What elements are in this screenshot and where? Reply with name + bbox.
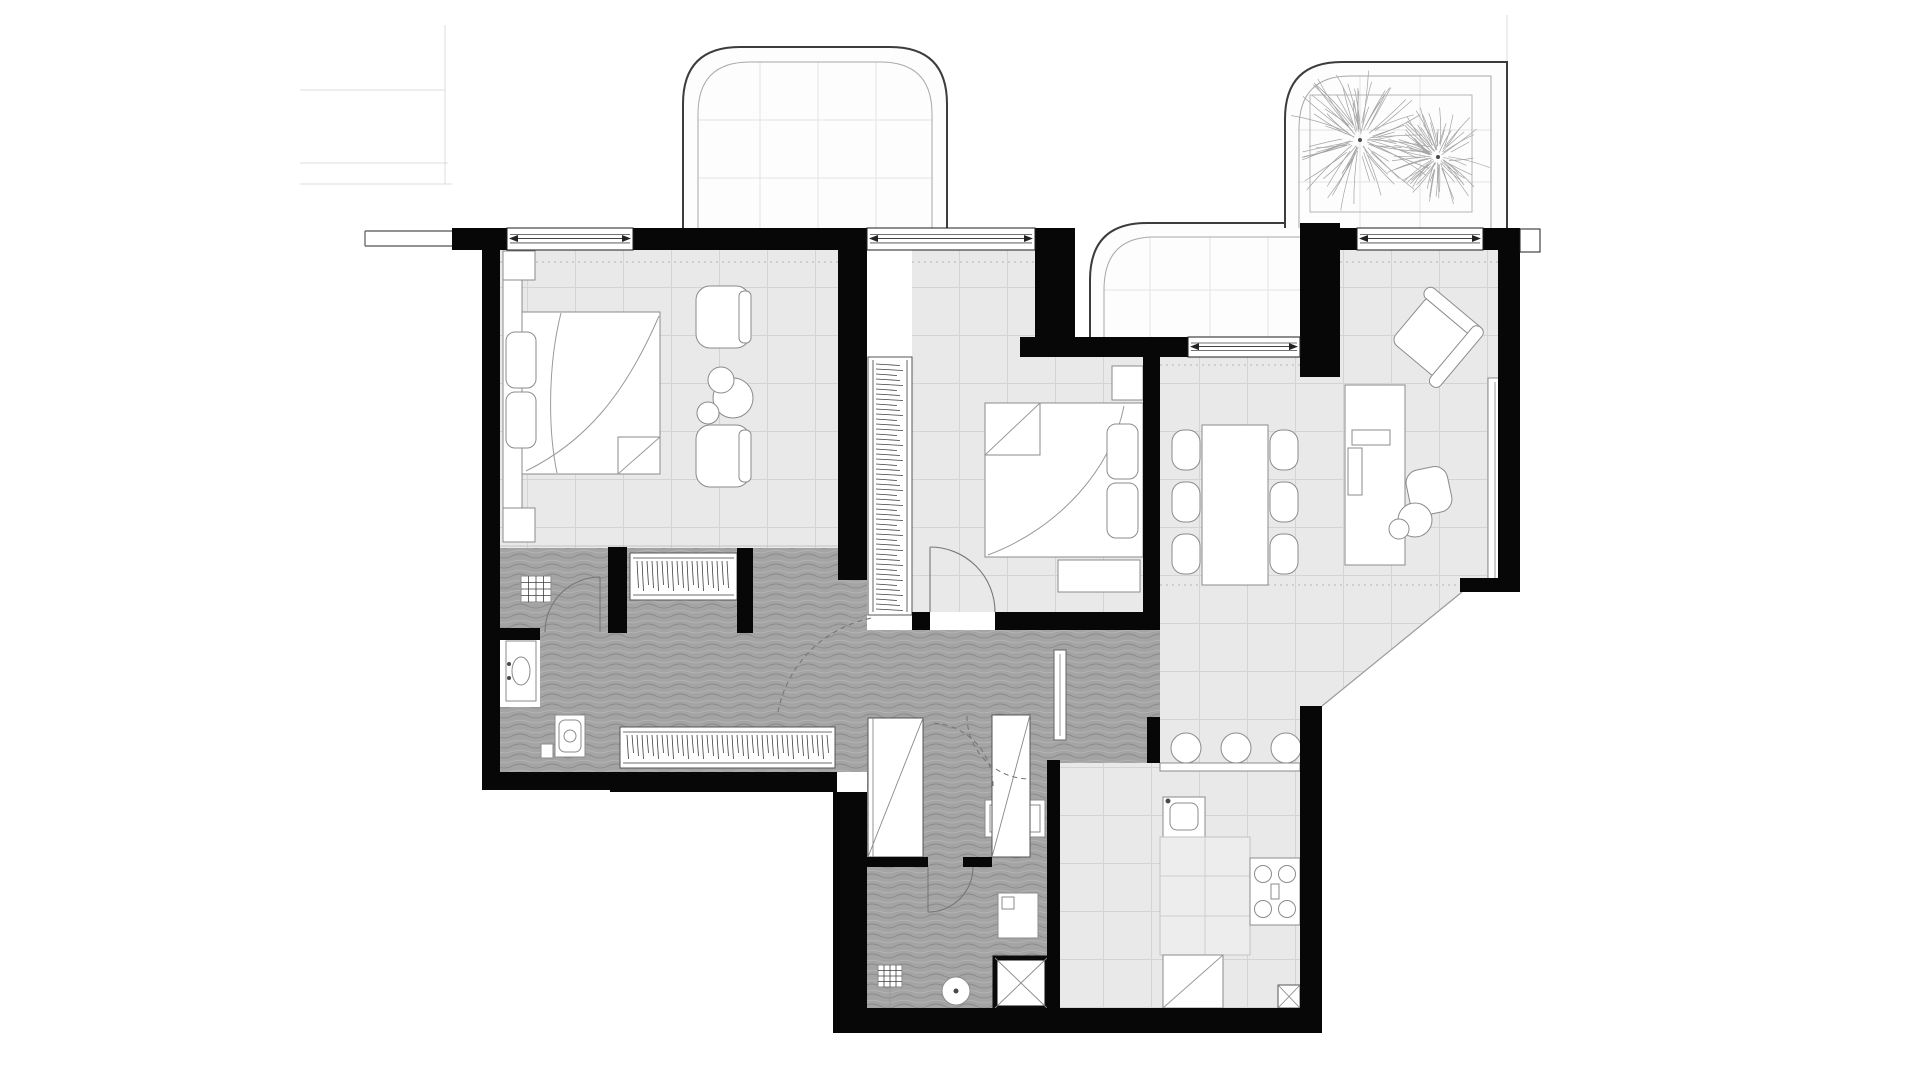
side-table-small <box>697 402 719 424</box>
corridor-under-wall <box>838 580 867 772</box>
window-bedroom2-balcony <box>867 228 1035 250</box>
desk-monitor <box>1352 430 1390 445</box>
bedroom2-bottom-wall <box>995 612 1160 630</box>
kitchen-right-wall <box>1300 706 1322 1008</box>
window-living-balcony <box>1188 337 1300 357</box>
window-bedroom1 <box>507 228 633 250</box>
dining-chair-3 <box>1172 534 1200 574</box>
armchair-1-back <box>739 291 751 343</box>
divider-wall <box>838 228 867 580</box>
bottom-wall-kitchen <box>1047 1008 1322 1033</box>
shaft-small <box>1278 985 1300 1008</box>
dining-chair-6 <box>1270 534 1298 574</box>
bar-stool-1 <box>1171 733 1201 763</box>
bath2-stub-left <box>867 857 928 867</box>
kitchen-left-wall <box>1047 760 1060 1008</box>
stub-b <box>737 548 753 633</box>
hall-bottom-wall <box>610 772 837 792</box>
top-wall-b <box>633 228 867 250</box>
tree-large-trunk <box>1358 138 1362 142</box>
stub-a <box>608 547 627 633</box>
bed1-pillow-2 <box>506 392 536 448</box>
hall-closet-lower <box>620 727 835 768</box>
wall-under-balcony2 <box>1020 337 1188 357</box>
right-wall <box>1498 228 1520 592</box>
window-living-terrace <box>1357 228 1483 250</box>
bar-stool-3 <box>1271 733 1301 763</box>
lower-left-wall <box>833 792 867 1027</box>
bedroom2-wardrobe <box>868 357 912 615</box>
right-stub <box>1460 578 1520 592</box>
hall-floor <box>867 630 1160 717</box>
shaft-2 <box>992 715 1030 857</box>
bar-counter <box>1160 763 1300 771</box>
bed1-pillow-1 <box>506 332 536 388</box>
window-end-cap-frame <box>1520 229 1540 252</box>
dining-chair-1 <box>1172 430 1200 470</box>
hall-closet-upper-box <box>630 553 737 600</box>
bedroom2-right-wall <box>1143 357 1160 630</box>
bath1-bin <box>541 744 553 758</box>
bath2-toilet <box>998 893 1038 938</box>
bed2-bench <box>1058 560 1140 592</box>
floor-plan-page <box>0 0 1920 1080</box>
kitchen-sliding-door <box>1054 650 1066 740</box>
floor-plan-canvas <box>0 0 1920 1080</box>
desk-tray <box>1348 448 1362 495</box>
bath1-vanity <box>506 641 536 701</box>
dining-chair-2 <box>1172 482 1200 522</box>
kitchen-sink-tap <box>1166 799 1171 804</box>
bed1-nightstand-top <box>503 251 535 280</box>
bath1-tap-1 <box>507 662 511 666</box>
shaft-1 <box>868 718 923 857</box>
bar-stool-2 <box>1221 733 1251 763</box>
balcony-top-left-floor <box>683 47 947 228</box>
bottom-wall-left <box>833 1008 1060 1033</box>
plant-small <box>1389 519 1409 539</box>
bedroom2-wardrobe-box <box>868 357 912 615</box>
bath2-round-dot <box>954 989 959 994</box>
bed1-nightstand-bottom <box>503 508 535 542</box>
bed2-pillow-2 <box>1107 483 1138 538</box>
nook-wall <box>500 628 540 640</box>
bed2-pillow-1 <box>1107 424 1138 479</box>
left-wall <box>482 228 500 790</box>
shower-enclosure <box>995 958 1047 1008</box>
bath1-bottom-wall <box>482 772 610 790</box>
bath2-stub-right <box>963 857 992 867</box>
jamb-bedroom2 <box>912 612 930 630</box>
dining-chair-4 <box>1270 430 1298 470</box>
window-end-cap <box>1520 229 1540 252</box>
dining-chair-5 <box>1270 482 1298 522</box>
bath1-tap-2 <box>507 676 511 680</box>
dining-table <box>1202 425 1268 585</box>
pier-terrace <box>1300 223 1340 377</box>
tree-small-trunk <box>1436 155 1440 159</box>
kitchen-stub <box>1147 717 1160 763</box>
armchair-2-back <box>739 430 751 482</box>
side-table-mid <box>708 367 734 393</box>
hall-closet-upper <box>630 553 737 600</box>
bed2-nightstand <box>1112 366 1143 400</box>
